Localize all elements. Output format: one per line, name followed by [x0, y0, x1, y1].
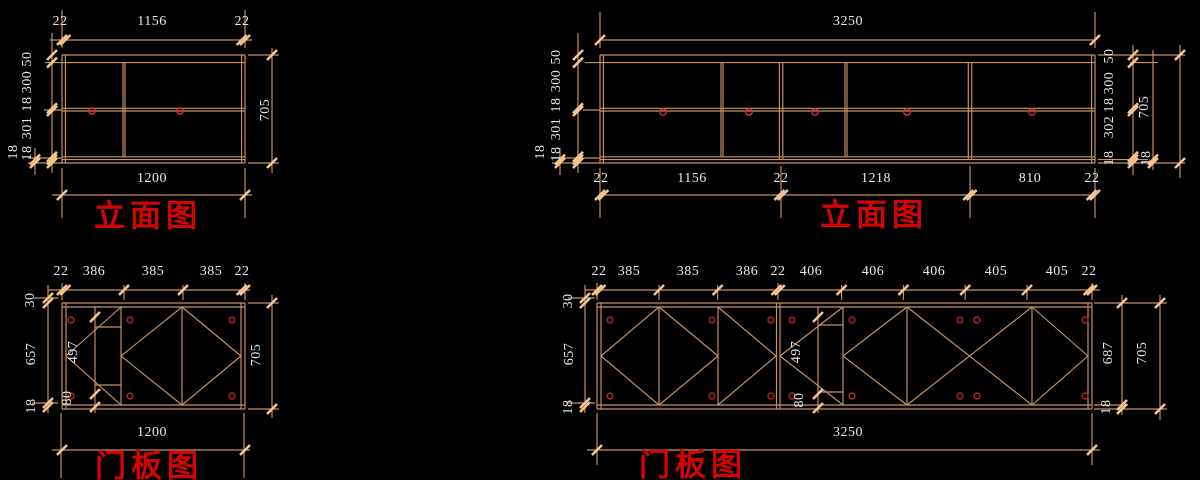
dim-label: 406: [800, 265, 823, 279]
view-title-doorpanel-right: 门板图: [639, 450, 747, 480]
dim-label: 18: [1103, 151, 1117, 166]
dim-label: 18: [7, 145, 21, 160]
dim-label: 18: [21, 97, 35, 112]
dim-label: 657: [25, 343, 39, 366]
dim-label: 18: [21, 146, 35, 161]
dim-label: 406: [862, 265, 885, 279]
dim-label: 705: [250, 344, 264, 367]
dim-label: 497: [790, 341, 804, 364]
dim-label: 22: [592, 265, 607, 279]
dim-label: 810: [1019, 172, 1042, 186]
dim-label: 405: [1046, 265, 1069, 279]
dim-label: 386: [83, 265, 106, 279]
dim-label: 3250: [833, 15, 863, 29]
dim-label: 22: [53, 15, 68, 29]
dim-label: 3250: [833, 426, 863, 440]
dim-label: 1218: [861, 172, 891, 186]
cad-canvas: 2211562250300183011818705120032505030018…: [0, 0, 1200, 480]
dim-label: 405: [985, 265, 1008, 279]
dimension-tick-marks: [30, 35, 1185, 455]
dim-label: 80: [61, 391, 75, 406]
dim-label: 18: [550, 98, 564, 113]
view-title-elevation-right: 立面图: [820, 200, 928, 231]
dim-label: 705: [1136, 342, 1150, 365]
dim-label: 385: [142, 265, 165, 279]
dim-label: 18: [550, 147, 564, 162]
dim-label: 22: [235, 15, 250, 29]
dim-label: 18: [1140, 151, 1154, 166]
dim-label: 30: [24, 293, 38, 308]
dim-label: 1156: [137, 15, 166, 29]
drawing-lines: [28, 10, 1185, 478]
view-title-doorpanel-left: 门板图: [95, 451, 203, 480]
dim-label: 30: [562, 294, 576, 309]
dim-label: 385: [618, 265, 641, 279]
dim-label: 1156: [677, 172, 706, 186]
dim-label: 18: [1103, 98, 1117, 113]
dim-label: 300: [21, 71, 35, 94]
dim-label: 385: [677, 265, 700, 279]
dim-label: 300: [1103, 72, 1117, 95]
dim-label: 301: [550, 118, 564, 141]
dim-label: 302: [1103, 116, 1117, 139]
dim-label: 657: [563, 343, 577, 366]
cad-drawing-svg: [0, 0, 1200, 480]
dim-label: 497: [67, 341, 81, 364]
view-title-elevation-left: 立面图: [94, 201, 202, 232]
dim-label: 50: [21, 52, 35, 67]
dim-label: 406: [923, 265, 946, 279]
dim-label: 18: [534, 145, 548, 160]
dim-label: 705: [259, 99, 273, 122]
dim-label: 22: [54, 265, 69, 279]
dim-label: 50: [550, 50, 564, 65]
dim-label: 687: [1102, 342, 1116, 365]
dim-label: 385: [200, 265, 223, 279]
dim-label: 705: [1138, 96, 1152, 119]
dim-label: 18: [562, 400, 576, 415]
dim-label: 18: [1100, 400, 1114, 415]
dim-label: 22: [1082, 265, 1097, 279]
dim-label: 22: [771, 265, 786, 279]
dim-label: 1200: [137, 172, 167, 186]
dim-label: 300: [550, 70, 564, 93]
dim-label: 50: [1103, 49, 1117, 64]
dim-label: 386: [736, 265, 759, 279]
dim-label: 22: [1085, 172, 1100, 186]
dim-label: 80: [793, 393, 807, 408]
dim-label: 18: [25, 399, 39, 414]
dim-label: 301: [21, 117, 35, 140]
dim-label: 22: [235, 265, 250, 279]
dim-label: 22: [594, 172, 609, 186]
dim-label: 22: [774, 172, 789, 186]
dim-label: 1200: [137, 426, 167, 440]
